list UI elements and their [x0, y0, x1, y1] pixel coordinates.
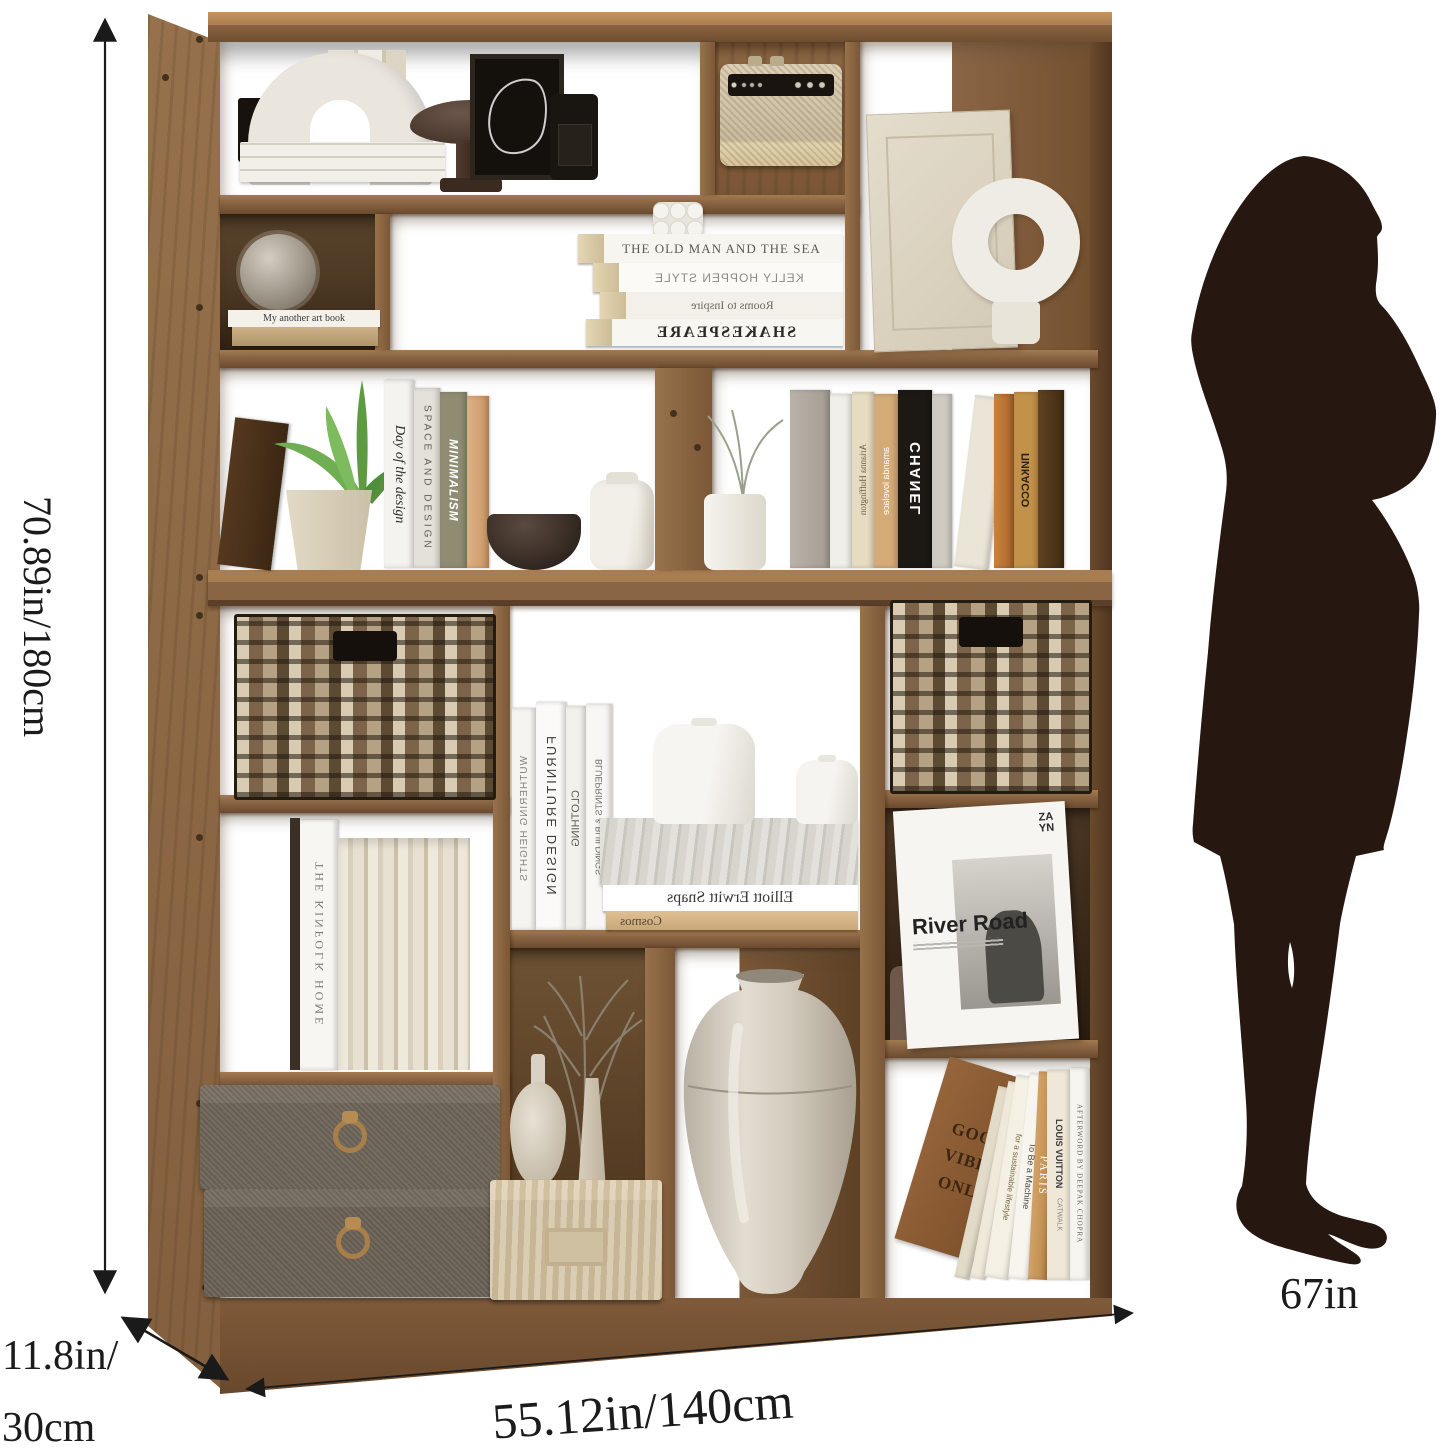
depth-value-line1: 11.8in/	[2, 1333, 118, 1379]
product-dimension-diagram: My another art book THE OLD MAN AND THE …	[0, 0, 1445, 1450]
height-value: 70.89in/180cm	[14, 496, 61, 737]
dimension-lines	[0, 0, 1445, 1450]
depth-value-line2: 30cm	[2, 1405, 95, 1450]
depth-dimension-label-line2: 30cm	[2, 1404, 95, 1450]
height-dimension-label: 70.89in/180cm	[14, 496, 61, 836]
depth-dimension-line	[123, 1318, 227, 1379]
depth-dimension-label-line1: 11.8in/	[2, 1332, 118, 1380]
person-height-label: 67in	[1280, 1268, 1358, 1319]
person-height-value: 67in	[1280, 1269, 1358, 1318]
